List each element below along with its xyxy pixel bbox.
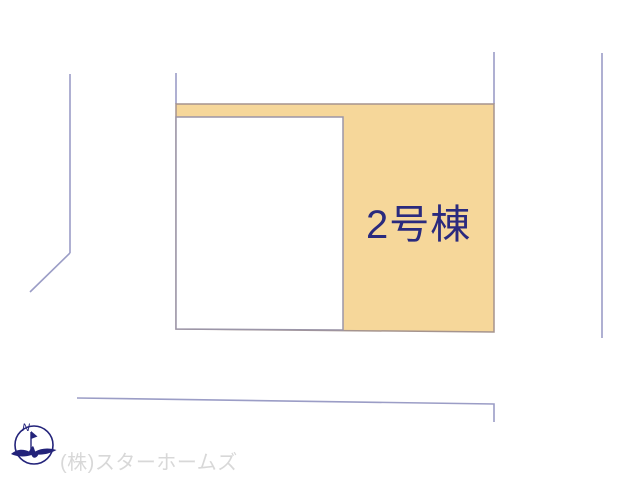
- compass-needle-arrow: [31, 431, 38, 439]
- parcel-unlabeled: [176, 117, 343, 330]
- boundary-line-road: [77, 398, 494, 422]
- boundary-line-left-diagonal: [30, 253, 70, 292]
- plot-map-drawing: [0, 0, 640, 480]
- building-2-label: 2号棟: [366, 192, 486, 250]
- compass-north-label: N: [22, 422, 30, 434]
- compass-circle: [15, 426, 53, 464]
- compass-north-icon: N: [9, 419, 61, 471]
- site-plan: 2号棟 N (株)スターホームズ: [0, 0, 640, 480]
- company-watermark: (株)スターホームズ: [60, 446, 238, 475]
